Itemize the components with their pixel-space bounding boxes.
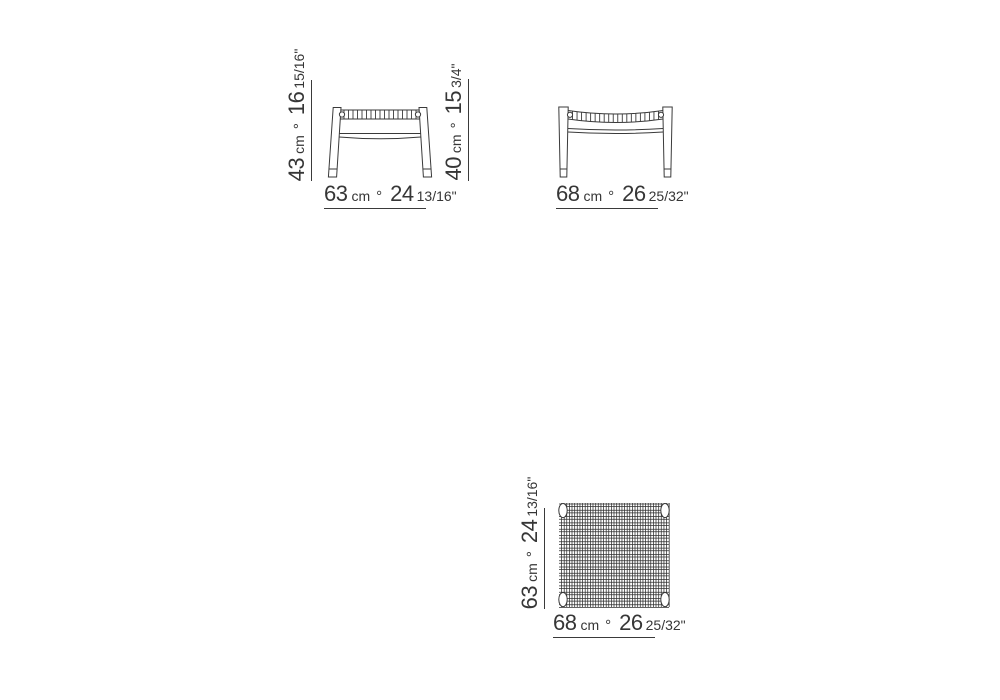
dimension-inch-fraction: 13/16" (417, 189, 457, 203)
stool-top-view-drawing (558, 500, 670, 610)
top-view-depth-dimension: 63 cm ° 24 13/16" (519, 468, 547, 618)
dimension-cm-value: 63 (324, 183, 347, 205)
dimension-cm-unit: cm (449, 134, 463, 153)
leg-top-corner (559, 593, 567, 607)
dimension-separator: ° (605, 618, 611, 633)
dimension-separator: ° (376, 189, 382, 204)
dimension-cm-value: 68 (556, 183, 579, 205)
dimension-cm-unit: cm (351, 189, 370, 203)
dimension-cm-value: 68 (553, 612, 576, 634)
dimension-cm-unit: cm (525, 563, 539, 582)
dimension-inch-fraction: 25/32" (649, 189, 689, 203)
woven-seat-grid (559, 503, 669, 607)
front-left-leg (328, 108, 341, 178)
technical-drawing-canvas: 43 cm ° 16 15/16" 63 (0, 0, 1000, 700)
stool-side-view-drawing (558, 103, 673, 179)
dimension-separator: ° (449, 122, 464, 128)
dimension-inch-value: 26 (619, 612, 642, 634)
side-left-leg (559, 107, 568, 177)
dimension-underlined-part: 40 cm ° 15 (443, 79, 469, 181)
dimension-inch-fraction: 3/4" (449, 63, 463, 87)
top-view-width-dimension: 68 cm ° 26 25/32" (553, 612, 686, 638)
dimension-cm-unit: cm (292, 135, 306, 154)
dimension-separator: ° (292, 123, 307, 129)
dimension-separator: ° (608, 189, 614, 204)
front-woven-band-ribs (344, 110, 416, 119)
dimension-inch-fraction: 25/32" (646, 618, 686, 632)
dimension-inch-value: 24 (519, 520, 541, 543)
leg-top-corner (559, 504, 567, 518)
front-right-leg (419, 108, 432, 178)
dimension-cm-value: 40 (443, 157, 465, 180)
dimension-inch-value: 24 (390, 183, 413, 205)
front-view-width-dimension: 63 cm ° 24 13/16" (324, 183, 457, 209)
leg-top-corner (661, 504, 669, 518)
dimension-underlined-part: 68 cm ° 26 (556, 183, 658, 209)
dimension-underlined-part: 63 cm ° 24 (519, 508, 545, 610)
side-view-height-dimension: 40 cm ° 15 3/4" (443, 57, 471, 187)
stool-front-view-drawing (327, 103, 433, 179)
dimension-inch-fraction: 13/16" (525, 477, 539, 517)
dimension-inch-value: 16 (286, 92, 308, 115)
dimension-underlined-part: 63 cm ° 24 (324, 183, 426, 209)
leg-top-corner (661, 593, 669, 607)
dimension-separator: ° (525, 551, 540, 557)
dimension-cm-unit: cm (583, 189, 602, 203)
dimension-cm-value: 63 (519, 586, 541, 609)
dimension-inch-value: 26 (622, 183, 645, 205)
dimension-underlined-part: 68 cm ° 26 (553, 612, 655, 638)
side-view-width-dimension: 68 cm ° 26 25/32" (556, 183, 689, 209)
dimension-inch-value: 15 (443, 91, 465, 114)
dimension-underlined-part: 43 cm ° 16 (286, 80, 312, 182)
front-view-height-dimension: 43 cm ° 16 15/16" (286, 40, 314, 190)
dimension-cm-unit: cm (580, 618, 599, 632)
side-right-leg (663, 107, 672, 177)
dimension-inch-fraction: 15/16" (292, 49, 306, 89)
dimension-cm-value: 43 (286, 158, 308, 181)
